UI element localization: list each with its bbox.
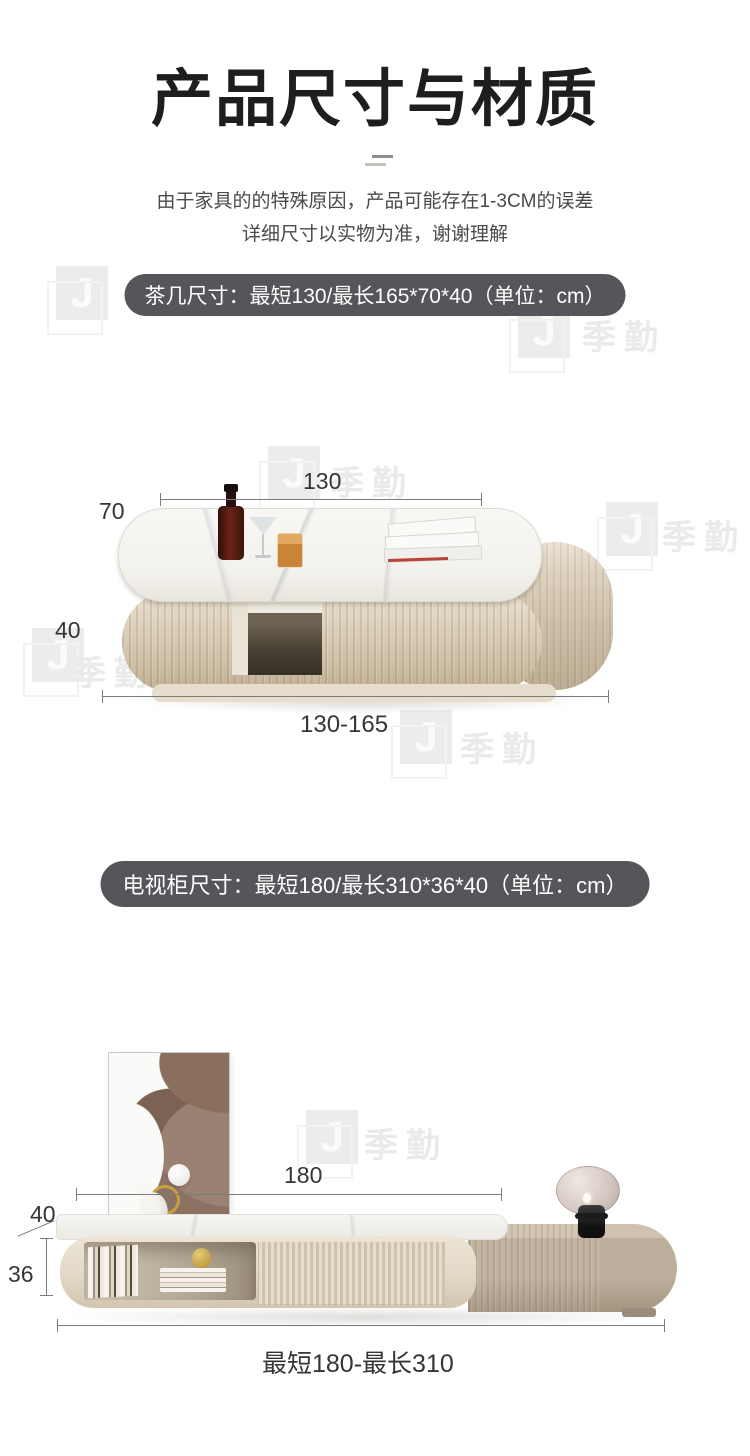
coffee-table-plinth [152, 684, 556, 702]
coffee-table-depth-label: 70 [99, 498, 125, 525]
brand-logo-icon: J [400, 710, 452, 764]
brand-watermark: J 季勤 [606, 502, 658, 556]
coffee-table-shelf-column [232, 601, 248, 675]
coffee-table-width-dimension-line [160, 499, 482, 500]
product-detail-page: 产品尺寸与材质 由于家具的的特殊原因，产品可能存在1-3CM的误差 详细尺寸以实… [0, 0, 750, 1456]
brand-watermark: J 季勤 [400, 710, 452, 764]
decor-gold-vase [192, 1248, 211, 1268]
tv-stand-width-dimension-line [76, 1194, 502, 1195]
tv-stand-range-dimension-line [57, 1325, 665, 1326]
tv-stand-height-dimension-line [46, 1238, 47, 1296]
decor-rabbit-head [136, 1182, 152, 1198]
decor-magazine-stack [160, 1268, 226, 1292]
brand-watermark-text: 季勤 [364, 1118, 448, 1167]
coffee-table-height-label: 40 [55, 617, 81, 644]
coffee-table-size-banner: 茶几尺寸：最短130/最长165*70*40（单位：cm） [125, 274, 626, 316]
tv-stand-size-banner: 电视柜尺寸：最短180/最长310*36*40（单位：cm） [101, 861, 650, 907]
page-title: 产品尺寸与材质 [0, 48, 750, 138]
brand-logo-icon: J [606, 502, 658, 556]
divider-bar-bottom [365, 163, 386, 166]
brand-watermark-text: 季勤 [662, 510, 746, 559]
disclaimer-line-1: 由于家具的的特殊原因，产品可能存在1-3CM的误差 [0, 186, 750, 213]
brand-watermark-text: 季勤 [582, 310, 666, 359]
brand-watermark: J [56, 266, 108, 320]
brand-logo-icon: J [306, 1110, 358, 1164]
decor-lamp-base [578, 1205, 605, 1238]
divider-bar-top [372, 155, 393, 158]
decor-books [88, 1245, 138, 1299]
brand-watermark-text: 季勤 [460, 722, 544, 771]
coffee-table-width-label: 130 [303, 468, 341, 495]
tv-stand-height-label: 36 [8, 1261, 34, 1288]
brand-logo-icon: J [56, 266, 108, 320]
tv-stand-fluted-drawer [258, 1242, 445, 1305]
brand-watermark-text: 季勤 [330, 456, 414, 505]
decor-bottle [218, 506, 244, 560]
coffee-table-range-dimension-line [102, 696, 609, 697]
tv-stand-range-label: 最短180-最长310 [262, 1344, 454, 1380]
decor-lamp-bulb [583, 1193, 591, 1203]
tv-stand-foot [622, 1308, 656, 1317]
coffee-table-fluted-base [122, 591, 542, 692]
coffee-table-range-label: 130-165 [300, 711, 388, 739]
disclaimer-line-2: 详细尺寸以实物为准，谢谢理解 [0, 219, 750, 246]
decor-martini-base [255, 555, 271, 558]
tv-stand-width-label: 180 [284, 1162, 322, 1189]
decor-sphere [168, 1164, 190, 1186]
brand-watermark: J 季勤 [306, 1110, 358, 1164]
decor-martini-stem [262, 534, 264, 556]
decor-tumbler-glass [277, 533, 303, 568]
